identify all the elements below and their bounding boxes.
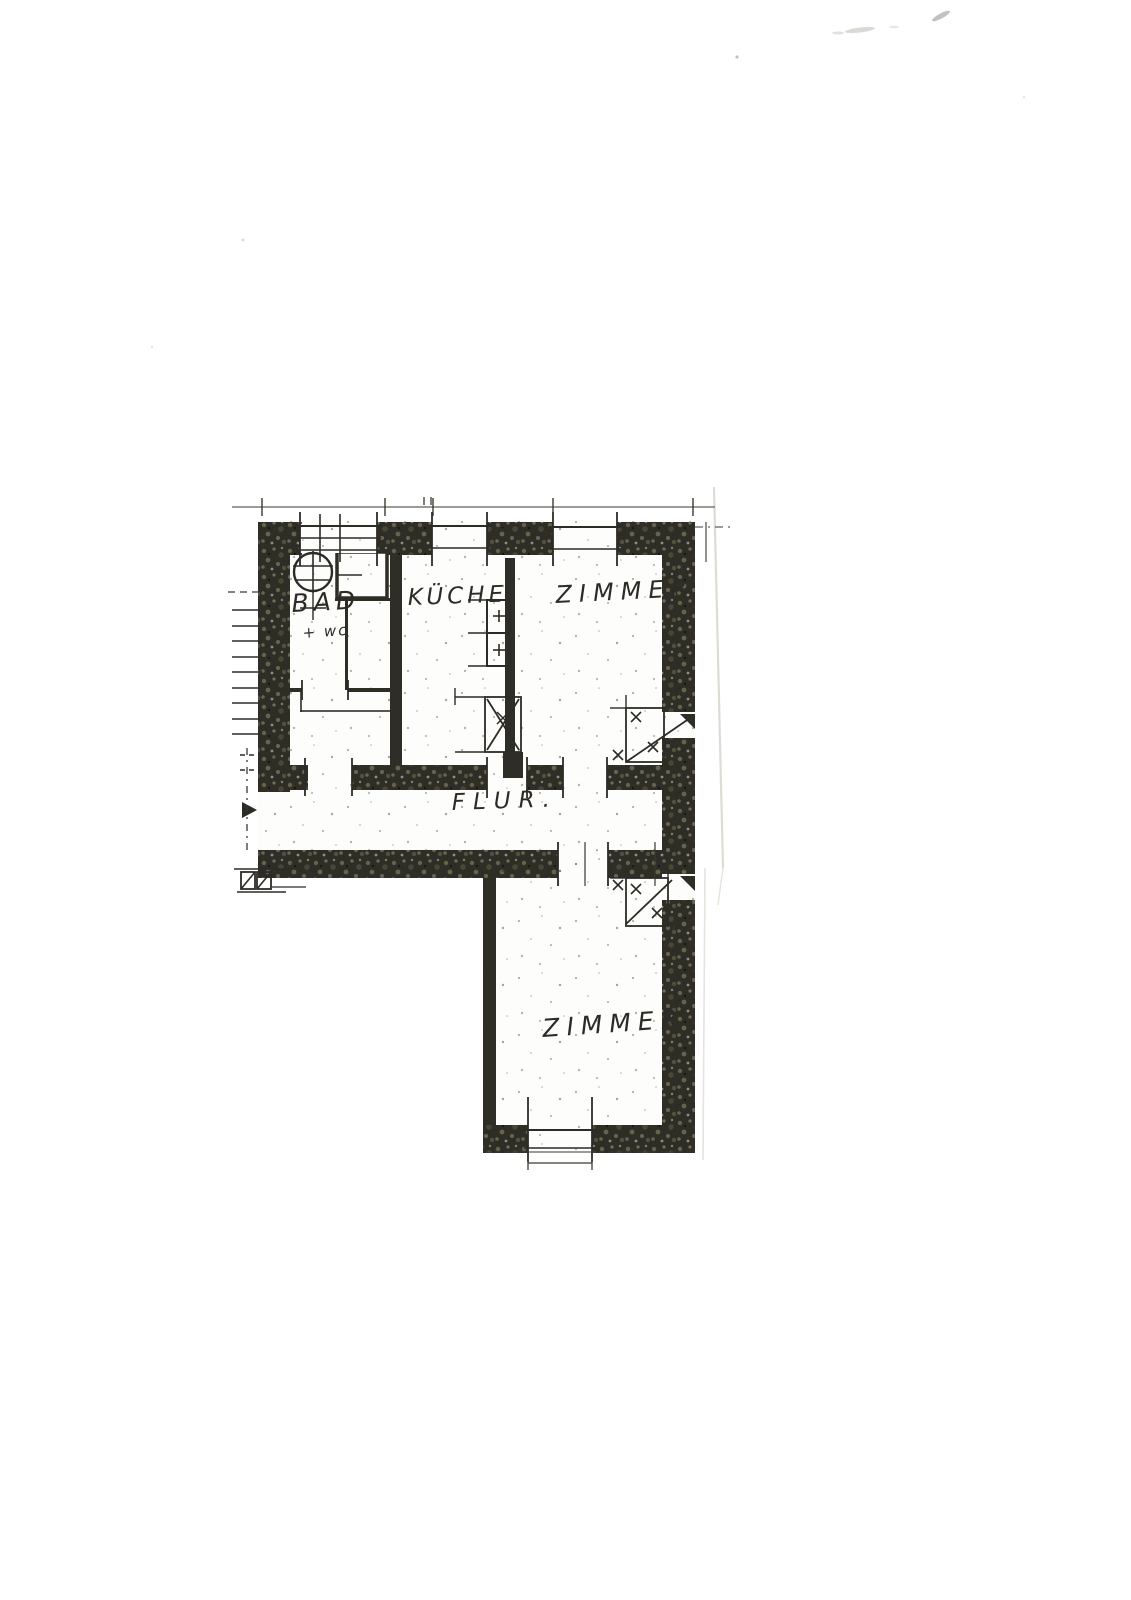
stair-tick-marks	[232, 610, 262, 770]
entrance-arrow-icon	[242, 802, 257, 818]
scanner-smudges	[151, 9, 1025, 348]
scanned-page: BAD + wc KÜCHE ZIMMER FLUR. ZIMMER	[0, 0, 1131, 1600]
room-label-flur: FLUR.	[451, 786, 558, 816]
paper-crease	[703, 487, 723, 1160]
room-sublabel-bad-wc: + wc	[302, 621, 349, 642]
room-label-kueche: KÜCHE	[407, 580, 507, 611]
room-label-bad: BAD	[291, 585, 361, 618]
floor-plan-svg: BAD + wc KÜCHE ZIMMER FLUR. ZIMMER	[0, 0, 1131, 1600]
